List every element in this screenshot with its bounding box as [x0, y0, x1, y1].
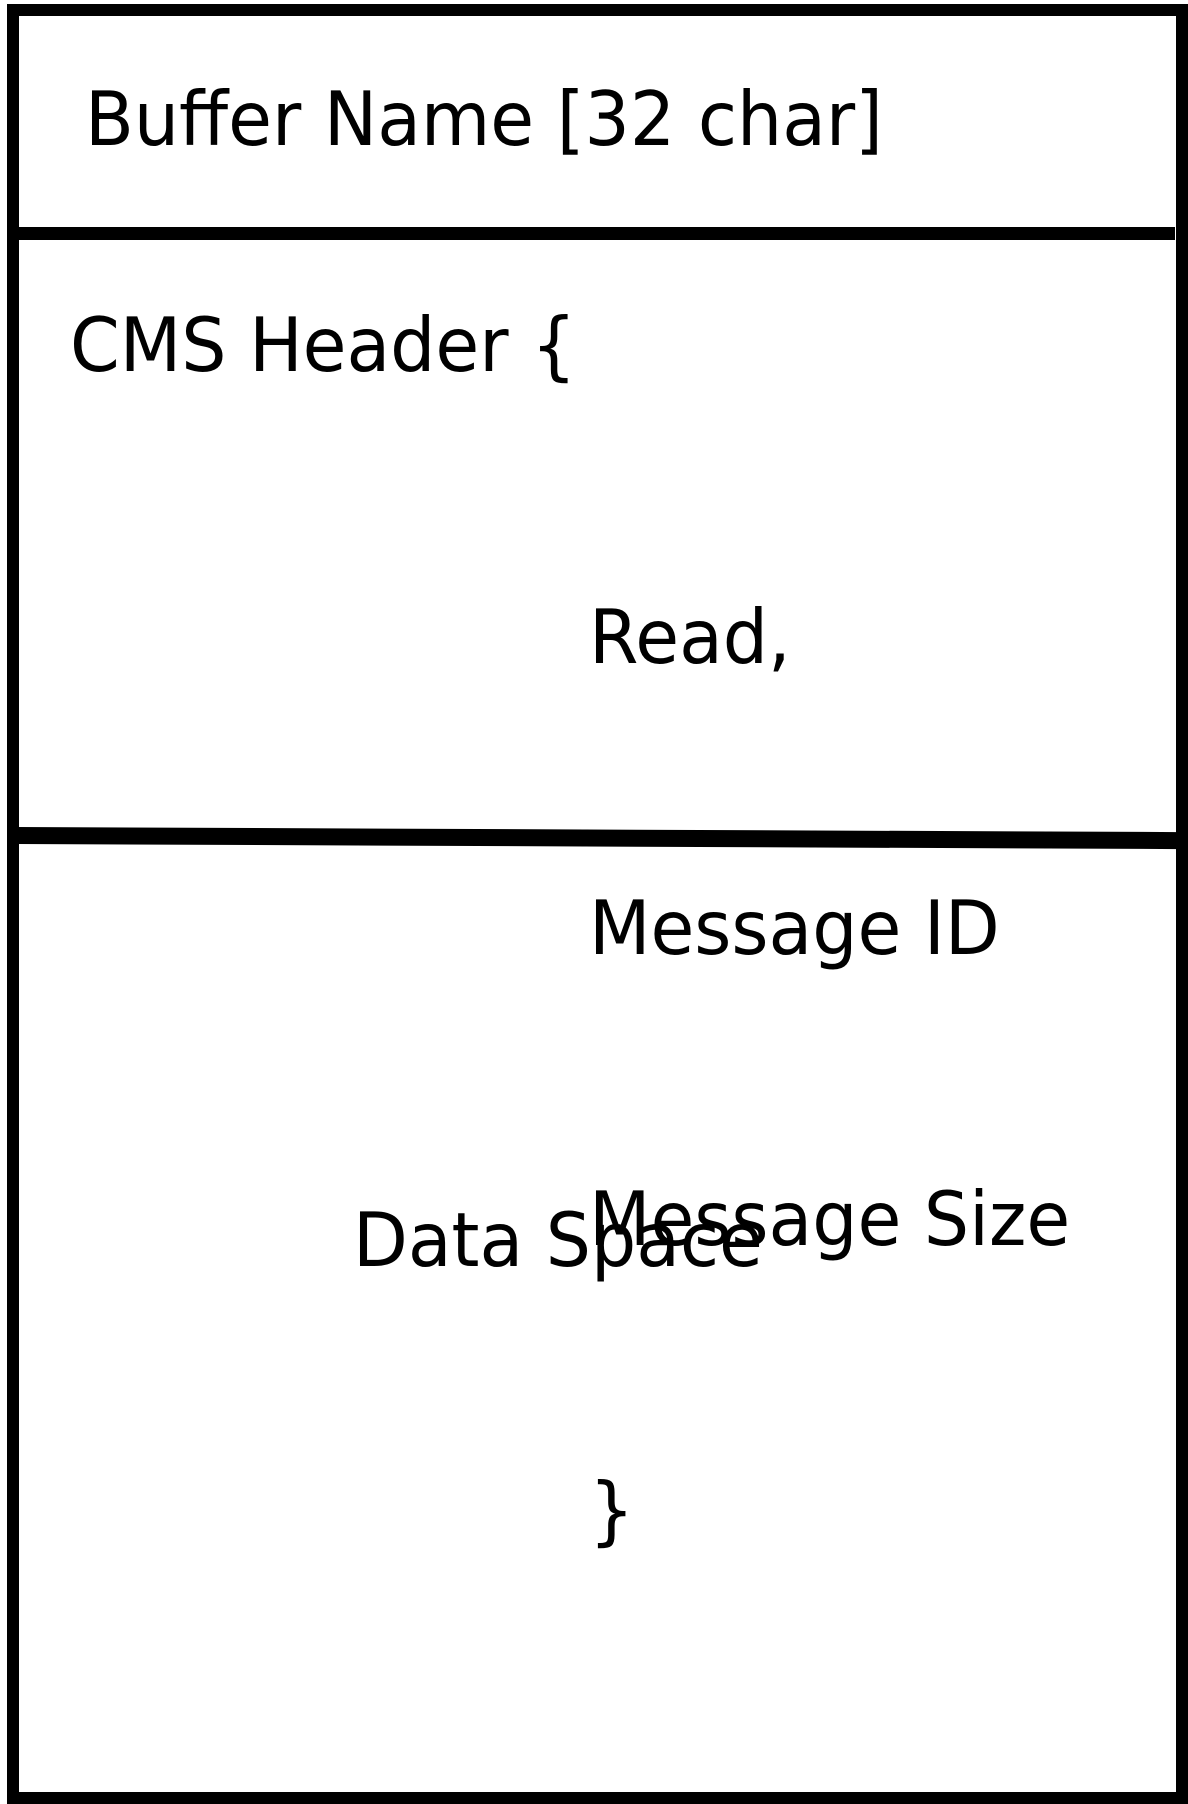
cms-header-field-message-id: Message ID [589, 880, 1070, 977]
buffer-name-section-label: Buffer Name [32 char] [85, 71, 883, 168]
data-space-section-label: Data Space [353, 1192, 763, 1289]
cms-header-field-list: Read, Message ID Message Size } [589, 395, 1070, 1753]
buffer-memory-layout-diagram: Buffer Name [32 char] CMS Header { Read,… [0, 0, 1188, 1804]
cms-header-closing-brace: } [589, 1462, 1070, 1559]
cms-header-field-read: Read, [589, 589, 1070, 686]
cms-header-opening-label: CMS Header { [70, 297, 577, 394]
section-divider-name-header [17, 227, 1175, 240]
